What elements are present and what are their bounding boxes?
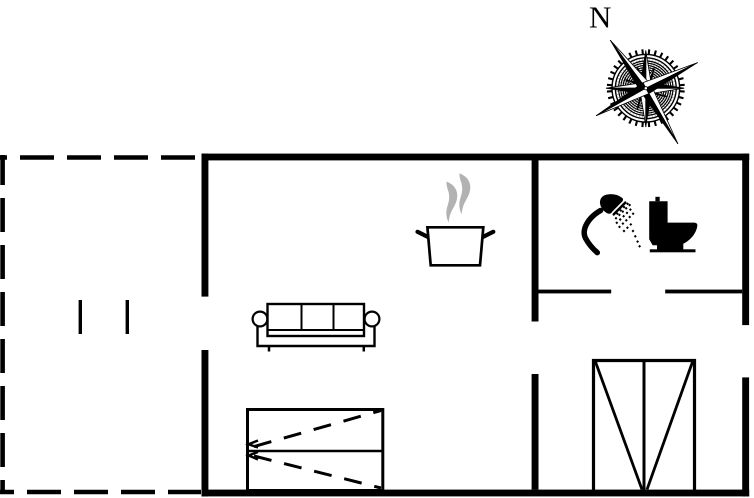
svg-text:N: N	[589, 0, 611, 35]
